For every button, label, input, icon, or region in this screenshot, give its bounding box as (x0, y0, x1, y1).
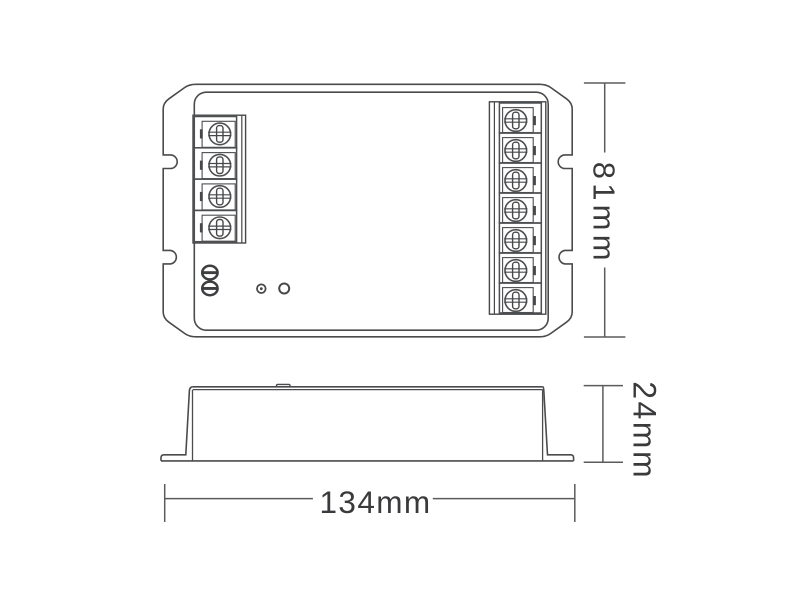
svg-text:134mm: 134mm (320, 484, 432, 520)
svg-text:81mm: 81mm (587, 162, 622, 265)
svg-text:24mm: 24mm (627, 381, 663, 480)
